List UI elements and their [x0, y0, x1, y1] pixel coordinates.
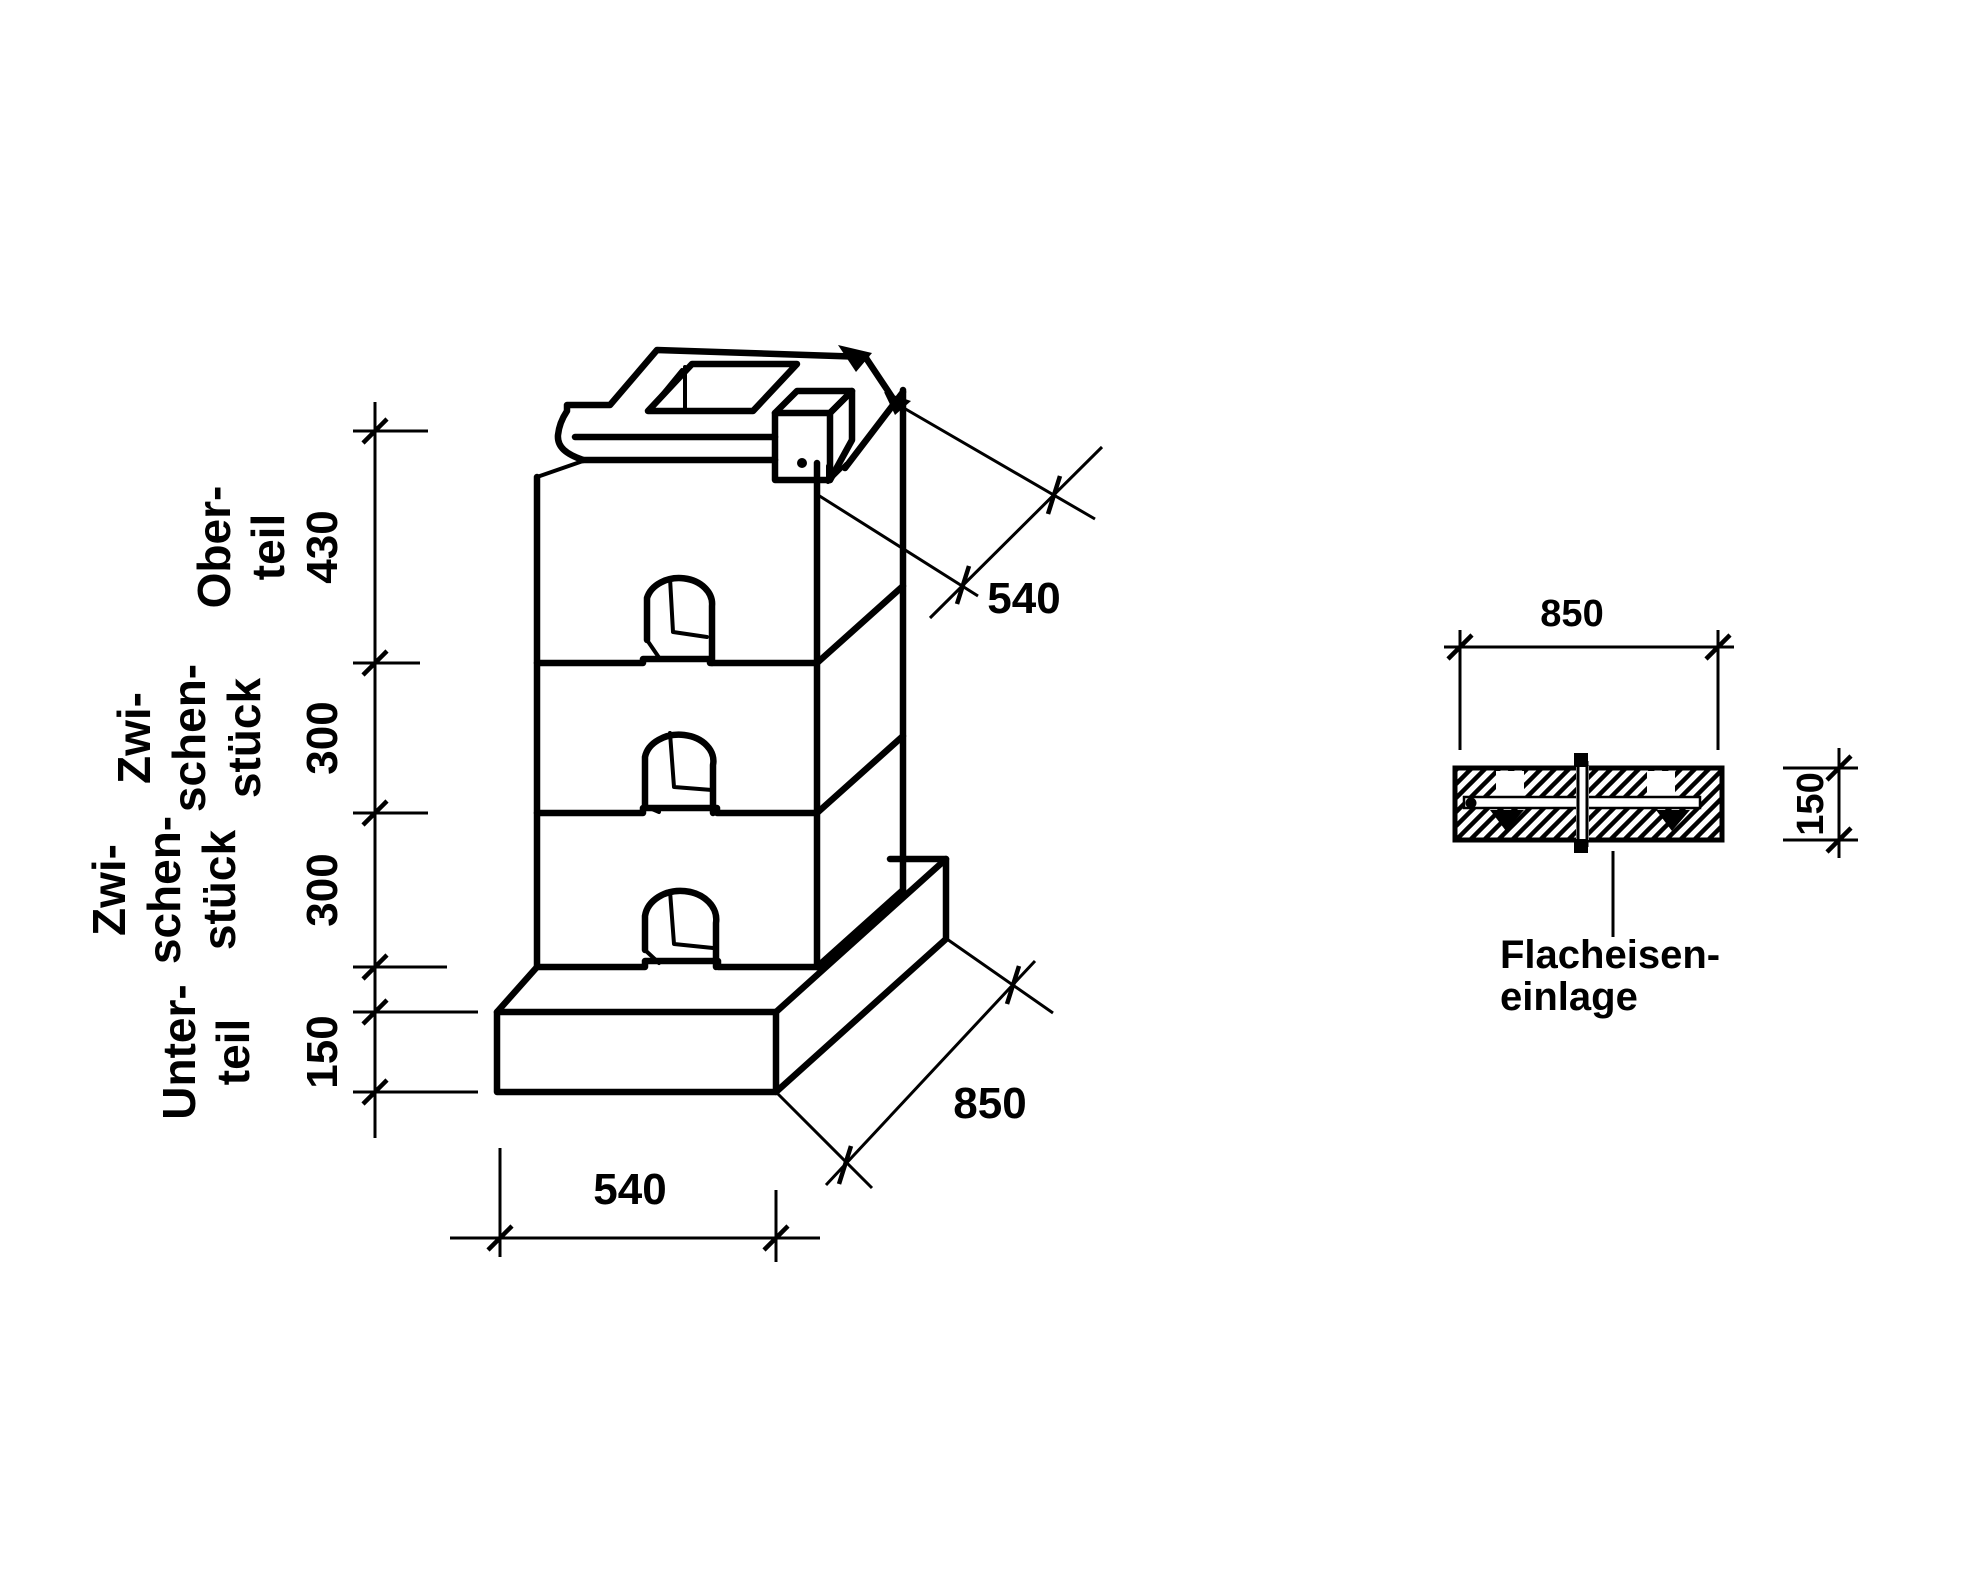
dim-label-section-150: 150: [1790, 772, 1832, 835]
bar-end-dot: [1466, 798, 1477, 809]
dim-label-850: 850: [953, 1079, 1026, 1128]
dim-label-150: 150: [298, 1015, 347, 1088]
side-division-upper: [817, 586, 903, 663]
recess-square-right: [1647, 771, 1675, 797]
flat-iron-label-line2: einlage: [1500, 975, 1638, 1019]
part-label-oberteil-line1: Ober-: [188, 486, 240, 609]
plate-right-depth-edge: [866, 358, 892, 397]
arch-outline: [645, 735, 713, 813]
technical-drawing: 430 300 300 150 Ober- teil Zwi- schen- s…: [0, 0, 1976, 1581]
base-slab: [497, 859, 946, 1092]
corner-cube-front-face: [775, 413, 830, 480]
section-view: Flacheisen- einlage 850 150: [1444, 593, 1858, 1019]
base-width-dimension: 540: [450, 1148, 820, 1262]
flat-iron-label-line1: Flacheisen-: [1500, 933, 1720, 977]
arch-outline: [647, 578, 712, 663]
part-label-zwischenstueck2-line3: stück: [193, 830, 245, 951]
slab-side-face: [776, 859, 946, 1092]
part-label-zwischenstueck2-line1: Zwi-: [83, 844, 135, 936]
part-label-unterteil-line2: teil: [207, 1019, 259, 1085]
slab-front-face: [497, 1012, 776, 1092]
block-division-lower: [537, 808, 817, 813]
top-hole-inner-edge: [650, 370, 682, 409]
corner-step-left: [537, 461, 583, 477]
grip-hole-middle: [645, 733, 713, 813]
dim-label-top-540: 540: [987, 574, 1060, 623]
recess-square-left: [1496, 771, 1524, 797]
part-label-zwischenstueck1-line2: schen-: [163, 664, 215, 812]
dim-label-300-lower: 300: [298, 853, 347, 926]
section-width-dimension: 850: [1444, 593, 1734, 750]
top-depth-dimension: 540: [818, 400, 1102, 623]
base-depth-dim-line: [826, 961, 1035, 1185]
isometric-view: 430 300 300 150 Ober- teil Zwi- schen- s…: [83, 345, 1102, 1262]
grip-hole-top: [647, 578, 712, 663]
part-label-zwischenstueck1-line1: Zwi-: [108, 692, 160, 784]
side-bottom-edge: [817, 890, 903, 967]
center-rod-bottom-stub: [1574, 839, 1588, 853]
height-ext-lines: [353, 431, 478, 1092]
slab-top-left-depth-edge: [497, 967, 537, 1012]
part-label-zwischenstueck1-line3: stück: [218, 678, 270, 799]
part-label-zwischenstueck2-line2: schen-: [138, 816, 190, 964]
column-bottom-edge: [537, 961, 817, 967]
side-division-lower: [817, 736, 903, 813]
arch-outline: [645, 891, 716, 967]
grip-hole-bottom: [645, 891, 716, 967]
top-hole-outline: [648, 364, 797, 411]
block-division-upper: [537, 659, 817, 663]
height-dimension: 430 300 300 150 Ober- teil Zwi- schen- s…: [83, 402, 478, 1138]
dim-label-300-upper: 300: [298, 701, 347, 774]
part-label-unterteil-line1: Unter-: [153, 984, 205, 1119]
section-height-dimension: 150: [1783, 748, 1858, 858]
anchor-dot: [797, 458, 807, 468]
center-rod-top-stub: [1574, 753, 1588, 767]
part-label-oberteil-line2: teil: [242, 514, 294, 580]
dim-label-430: 430: [298, 510, 347, 583]
dim-label-section-850: 850: [1540, 593, 1603, 635]
top-piece: [558, 345, 911, 480]
column-blocks: [537, 390, 903, 967]
dim-label-bottom-540: 540: [593, 1165, 666, 1214]
